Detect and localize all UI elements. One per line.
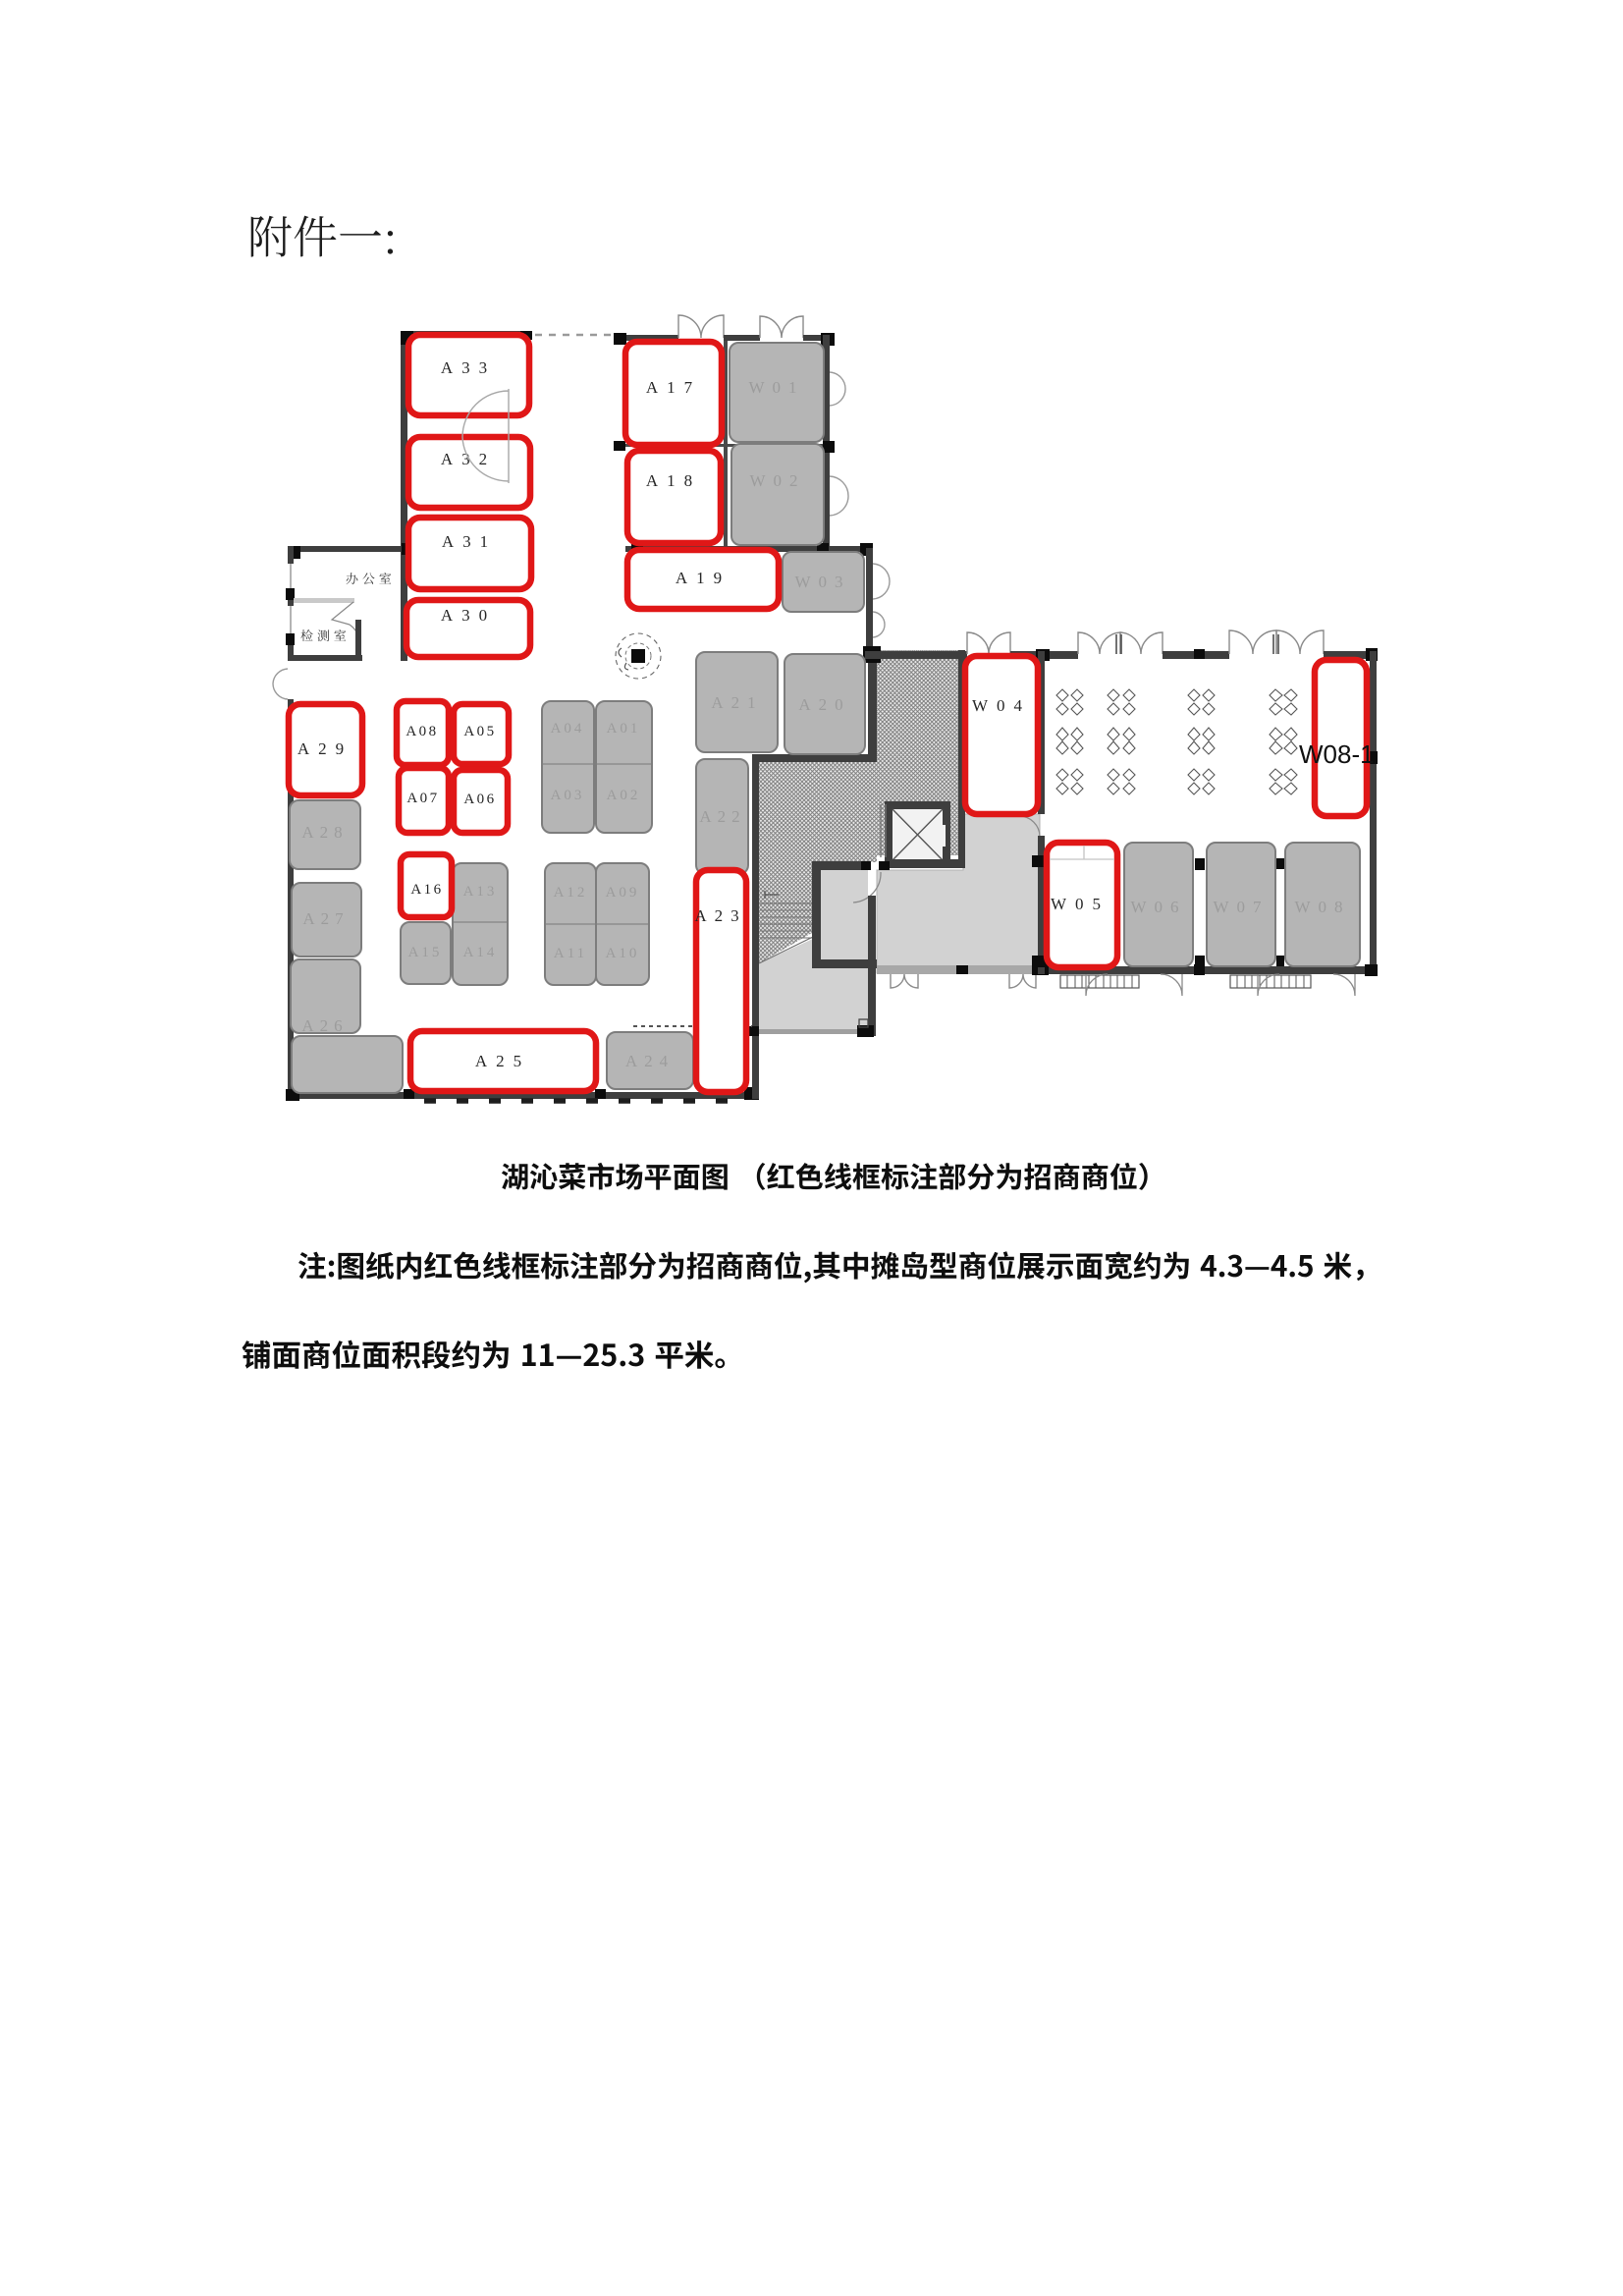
- svg-text:W05: W05: [1051, 895, 1109, 913]
- svg-text:A21: A21: [711, 693, 763, 712]
- svg-text:A01: A01: [607, 721, 641, 737]
- svg-text:A04: A04: [551, 721, 585, 737]
- svg-text:A09: A09: [606, 885, 640, 901]
- svg-text:A19: A19: [676, 569, 730, 587]
- svg-text:A30: A30: [441, 606, 496, 625]
- svg-text:A14: A14: [463, 945, 498, 960]
- svg-text:A31: A31: [442, 532, 497, 551]
- svg-text:A13: A13: [463, 884, 498, 900]
- svg-text:A33: A33: [441, 358, 496, 377]
- svg-text:A10: A10: [606, 946, 640, 961]
- svg-text:A25: A25: [475, 1052, 530, 1070]
- svg-text:A24: A24: [625, 1052, 675, 1070]
- svg-text:A28: A28: [301, 823, 348, 842]
- svg-text:A11: A11: [554, 946, 587, 961]
- svg-text:A27: A27: [302, 909, 349, 928]
- svg-text:A06: A06: [463, 792, 496, 807]
- svg-text:A26: A26: [301, 1016, 348, 1035]
- svg-text:A07: A07: [406, 791, 439, 806]
- svg-text:W02: W02: [749, 471, 805, 490]
- svg-text:A02: A02: [607, 788, 641, 803]
- svg-text:W03: W03: [794, 573, 850, 591]
- svg-text:A08: A08: [406, 724, 438, 739]
- svg-text:W08: W08: [1294, 898, 1350, 916]
- svg-text:A18: A18: [646, 471, 701, 490]
- svg-text:W06: W06: [1130, 898, 1186, 916]
- svg-text:A20: A20: [798, 695, 850, 714]
- svg-text:A16: A16: [410, 882, 443, 898]
- svg-text:W04: W04: [972, 696, 1031, 715]
- svg-text:A03: A03: [551, 788, 585, 803]
- svg-text:A22: A22: [699, 807, 745, 826]
- svg-text:A15: A15: [408, 945, 443, 960]
- svg-text:W08-1: W08-1: [1299, 739, 1375, 769]
- svg-text:A29: A29: [298, 739, 352, 758]
- svg-text:A17: A17: [646, 378, 701, 397]
- svg-text:A23: A23: [694, 906, 746, 925]
- svg-text:A05: A05: [463, 724, 496, 739]
- svg-text:W07: W07: [1213, 898, 1269, 916]
- svg-text:A12: A12: [554, 885, 588, 901]
- svg-text:W01: W01: [748, 378, 804, 397]
